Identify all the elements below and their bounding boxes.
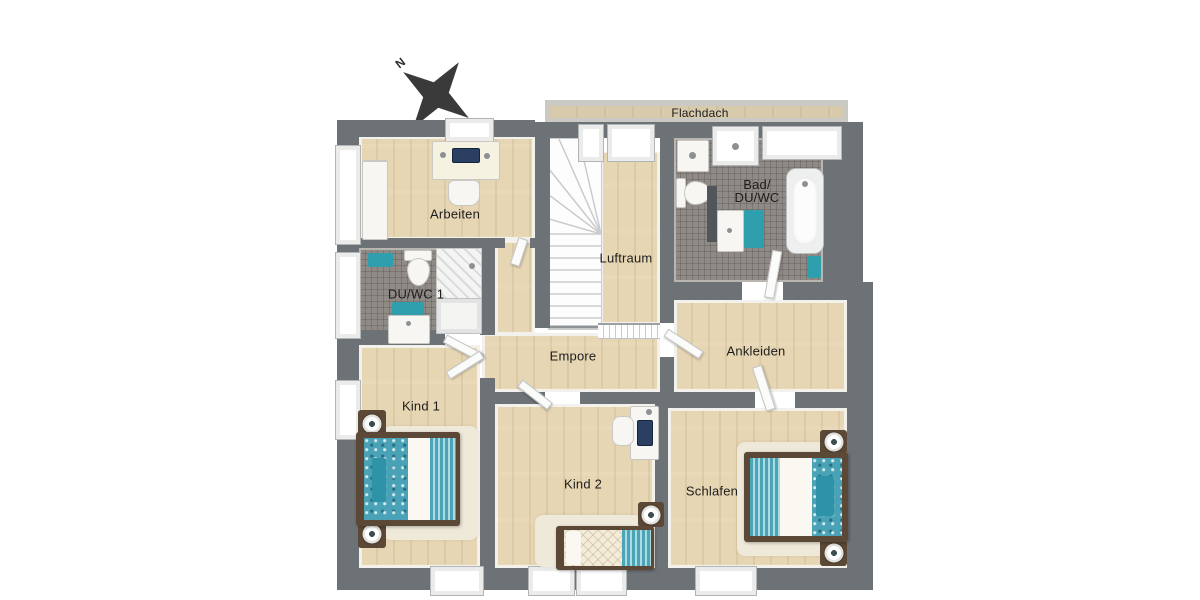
chair-kind2 [612,416,634,446]
wardrobe-arbeiten [362,160,388,240]
bed-kind1-runner [372,458,386,502]
shelf-duwc1 [368,253,393,267]
sink-vanity-bad [717,210,744,252]
stairs [548,138,602,330]
bath-mat-bad [744,210,764,248]
room-label-kind1: Kind 1 [402,399,440,414]
shower-duwc1-tray [436,298,482,334]
nightstand-kind2 [638,502,664,527]
wall-stub-bad [707,186,717,242]
wall-segment [535,122,550,328]
wall-segment [660,122,674,282]
desk-item [440,152,446,158]
window-kind1-bottom [430,566,484,596]
wall-segment [492,120,535,137]
roof-window-2 [607,124,655,162]
bed-schlafen-runner [816,476,834,516]
bed-kind2-pillow [566,531,581,565]
computer-monitor-kind2 [637,420,653,446]
wall-segment [783,282,847,300]
room-label-bad: Bad/ DU/WC [734,178,779,204]
window-arbeiten-left [335,145,361,245]
room-label-ankleiden: Ankleiden [727,344,786,359]
wall-segment [847,282,873,568]
room-label-arbeiten: Arbeiten [430,207,480,222]
shower-bad-top [712,126,759,166]
desk-item [484,153,490,159]
nightstand-schlafen-top [820,430,847,454]
window-arbeiten-top [445,118,494,142]
window-kind2-bottom-1 [528,566,575,596]
wall-segment [660,282,742,300]
roof-window-bad [762,126,842,160]
window-duwc1-left [335,252,361,339]
bed-kind1-mattress [408,438,430,520]
floor-plan: N [0,0,1200,600]
wall-segment [660,300,674,323]
wall-segment [795,392,847,408]
room-label-luftraum: Luftraum [600,251,653,266]
window-kind2-bottom-2 [576,566,627,596]
bed-kind1-foot-blanket [430,438,456,520]
wall-segment [480,378,495,568]
railing [598,323,660,339]
room-label-kind2: Kind 2 [564,477,602,492]
wall-segment [755,568,873,590]
chair-arbeiten [448,180,480,206]
room-label-empore: Empore [550,349,597,364]
bed-kind2-foot-blanket [622,530,651,566]
sink-vanity-duwc1 [388,315,430,344]
desk-lamp-kind2 [646,409,652,415]
bath-mat-duwc1 [392,302,424,315]
bed-schlafen-mattress [780,458,812,536]
nightstand-schlafen-bottom [820,540,847,566]
wall-segment [668,392,755,408]
wall-segment [337,120,359,145]
room-label-bad-line2: DU/WC [734,190,779,205]
wall-segment [625,568,695,590]
room-luftraum [600,150,660,325]
wall-segment [480,238,495,335]
wall-segment [660,357,674,392]
wall-segment [482,568,528,590]
roof-window-1 [578,124,604,162]
bathtub [786,168,824,254]
wall-segment [580,392,660,404]
towel-rack-bad [807,256,821,278]
room-label-duwc1: DU/WC 1 [388,287,444,302]
wall-segment [337,568,430,590]
computer-monitor-arbeiten [452,148,480,163]
window-schlafen-bottom [695,566,757,596]
room-label-schlafen: Schlafen [686,484,738,499]
bed-schlafen-foot-blanket [750,458,780,536]
room-label-flachdach: Flachdach [671,106,728,120]
shower-bad-corner [677,140,709,172]
bed-kind1-head-cover [364,438,408,520]
